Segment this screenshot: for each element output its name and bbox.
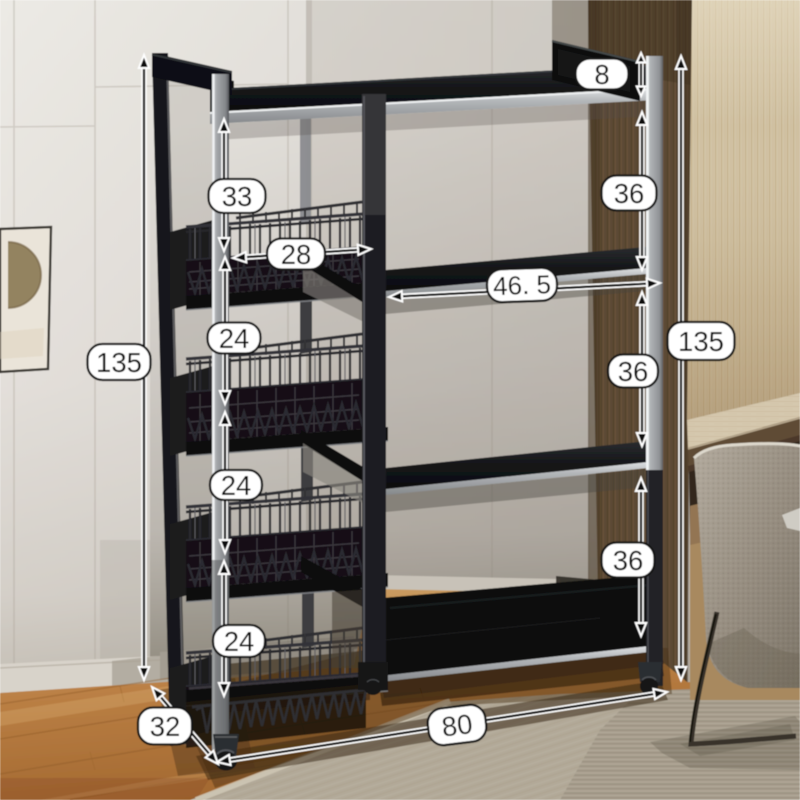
svg-text:32: 32: [150, 711, 181, 742]
svg-text:36: 36: [618, 356, 649, 387]
svg-text:135: 135: [678, 326, 724, 357]
svg-text:36: 36: [614, 178, 645, 209]
svg-text:8: 8: [594, 59, 609, 90]
svg-text:80: 80: [440, 708, 474, 742]
svg-text:36: 36: [613, 545, 644, 576]
svg-text:24: 24: [221, 470, 252, 501]
svg-text:33: 33: [222, 181, 253, 212]
svg-text:24: 24: [224, 626, 255, 657]
svg-text:24: 24: [219, 323, 250, 354]
svg-text:135: 135: [96, 347, 142, 378]
svg-text:46. 5: 46. 5: [493, 269, 552, 301]
svg-text:28: 28: [281, 239, 312, 270]
